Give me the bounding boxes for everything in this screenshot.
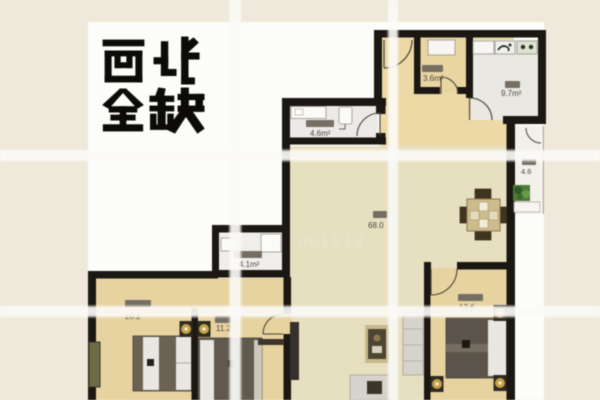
svg-text:001019: 001019: [299, 233, 364, 250]
svg-text:3.6m²: 3.6m²: [423, 74, 444, 83]
svg-text:4.1m²: 4.1m²: [239, 260, 260, 269]
svg-text:68.0: 68.0: [368, 221, 384, 230]
svg-text:4.6m²: 4.6m²: [310, 129, 331, 138]
svg-text:9.7m²: 9.7m²: [501, 89, 522, 98]
svg-text:4.6: 4.6: [521, 167, 531, 176]
svg-text:11.2: 11.2: [216, 324, 232, 333]
